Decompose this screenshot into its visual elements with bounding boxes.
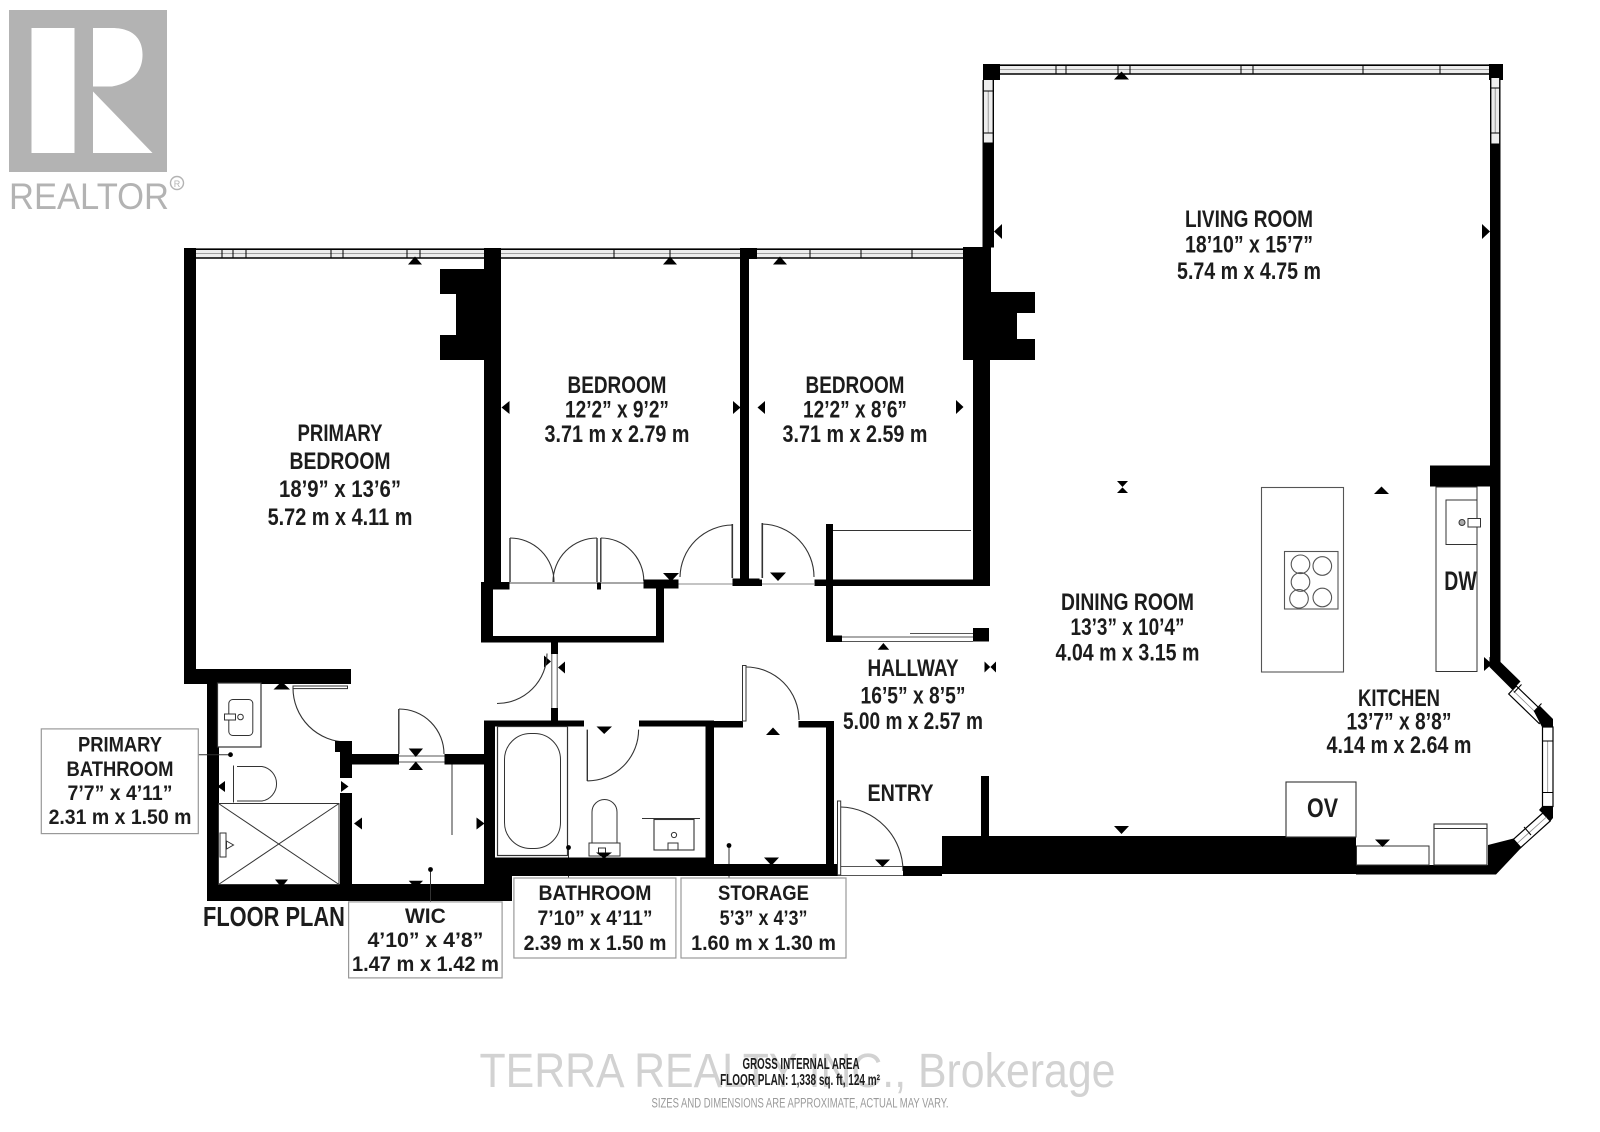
svg-text:4.04 m x 3.15 m: 4.04 m x 3.15 m — [1056, 639, 1200, 666]
svg-text:BATHROOM: BATHROOM — [67, 758, 174, 782]
svg-text:DINING ROOM: DINING ROOM — [1061, 588, 1194, 616]
svg-text:R: R — [174, 179, 181, 189]
svg-text:ENTRY: ENTRY — [868, 779, 934, 806]
svg-text:STORAGE: STORAGE — [718, 882, 809, 906]
svg-text:12’2” x 8’6”: 12’2” x 8’6” — [803, 395, 907, 423]
svg-text:LIVING ROOM: LIVING ROOM — [1185, 205, 1313, 233]
svg-text:5.74 m x 4.75 m: 5.74 m x 4.75 m — [1177, 257, 1321, 284]
svg-text:7’10” x 4’11”: 7’10” x 4’11” — [538, 906, 653, 930]
svg-text:1.47 m x 1.42 m: 1.47 m x 1.42 m — [352, 952, 499, 976]
svg-text:FLOOR PLAN: FLOOR PLAN — [203, 901, 345, 932]
svg-text:PRIMARY: PRIMARY — [78, 733, 162, 757]
svg-text:18’9” x 13’6”: 18’9” x 13’6” — [279, 475, 401, 502]
svg-text:16’5” x 8’5”: 16’5” x 8’5” — [861, 681, 966, 709]
svg-text:3.71 m x 2.79 m: 3.71 m x 2.79 m — [545, 420, 690, 447]
svg-text:PRIMARY: PRIMARY — [298, 420, 383, 447]
svg-text:12’2” x 9’2”: 12’2” x 9’2” — [565, 395, 669, 423]
svg-text:5’3” x 4’3”: 5’3” x 4’3” — [720, 907, 808, 931]
svg-text:OV: OV — [1307, 794, 1339, 824]
svg-text:4.14 m x 2.64 m: 4.14 m x 2.64 m — [1327, 731, 1472, 758]
svg-text:18’10” x 15’7”: 18’10” x 15’7” — [1185, 231, 1313, 258]
svg-text:WIC: WIC — [405, 904, 446, 928]
svg-text:13’3” x 10’4”: 13’3” x 10’4” — [1071, 613, 1185, 641]
svg-text:2.39 m x 1.50 m: 2.39 m x 1.50 m — [524, 931, 667, 955]
svg-text:4’10” x 4’8”: 4’10” x 4’8” — [367, 928, 483, 952]
svg-text:REALTOR: REALTOR — [9, 176, 169, 217]
svg-text:FLOOR PLAN: 1,338 sq. ft, 124: FLOOR PLAN: 1,338 sq. ft, 124 m² — [720, 1071, 880, 1089]
svg-text:7’7” x 4’11”: 7’7” x 4’11” — [68, 781, 173, 805]
svg-text:BATHROOM: BATHROOM — [539, 881, 652, 905]
svg-text:5.72 m x 4.11 m: 5.72 m x 4.11 m — [268, 503, 413, 530]
svg-text:HALLWAY: HALLWAY — [867, 654, 959, 682]
svg-text:5.00 m x 2.57 m: 5.00 m x 2.57 m — [843, 707, 983, 735]
svg-text:1.60 m x 1.30 m: 1.60 m x 1.30 m — [691, 931, 836, 955]
svg-text:DW: DW — [1444, 566, 1477, 596]
svg-text:3.71 m x 2.59 m: 3.71 m x 2.59 m — [783, 420, 928, 447]
svg-text:SIZES AND DIMENSIONS ARE APPRO: SIZES AND DIMENSIONS ARE APPROXIMATE, AC… — [652, 1095, 949, 1111]
svg-text:2.31 m x 1.50 m: 2.31 m x 1.50 m — [49, 805, 192, 829]
svg-text:BEDROOM: BEDROOM — [290, 447, 391, 475]
